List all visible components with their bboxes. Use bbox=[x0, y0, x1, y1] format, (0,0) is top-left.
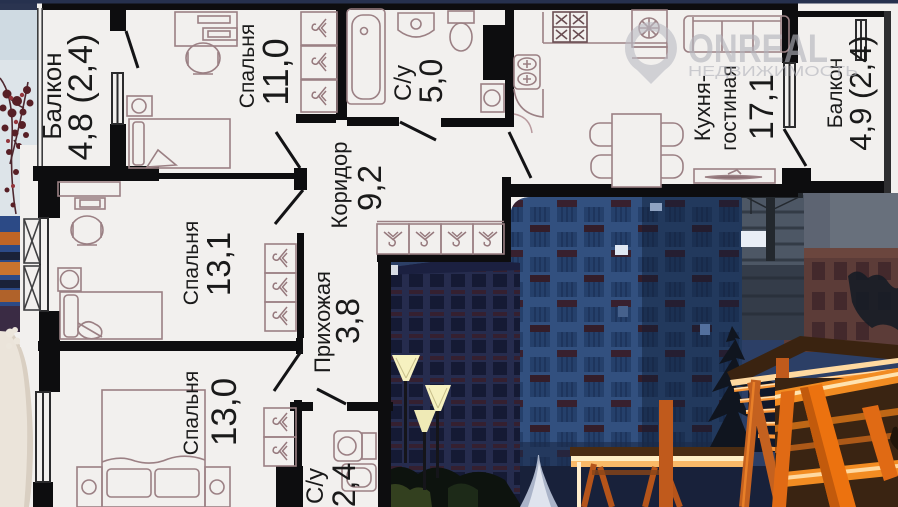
svg-text:4,8 (2,4): 4,8 (2,4) bbox=[62, 34, 100, 161]
svg-text:11,0: 11,0 bbox=[255, 38, 296, 105]
svg-text:5,0: 5,0 bbox=[413, 59, 449, 103]
svg-text:3,8: 3,8 bbox=[329, 298, 366, 344]
svg-text:13,0: 13,0 bbox=[205, 378, 244, 446]
svg-text:2,4: 2,4 bbox=[326, 463, 362, 507]
svg-text:Спальня: Спальня bbox=[180, 371, 203, 455]
svg-text:4,9 (2,4): 4,9 (2,4) bbox=[843, 35, 878, 150]
svg-text:С/у: С/у bbox=[302, 468, 329, 504]
svg-text:НЕДВИЖИМОСТЬ: НЕДВИЖИМОСТЬ bbox=[688, 63, 858, 80]
svg-text:13,1: 13,1 bbox=[200, 232, 237, 296]
svg-text:Коридор: Коридор bbox=[327, 142, 352, 229]
svg-text:9,2: 9,2 bbox=[351, 165, 388, 211]
svg-text:Кухня-: Кухня- bbox=[690, 75, 715, 141]
svg-text:17,1: 17,1 bbox=[743, 74, 781, 140]
